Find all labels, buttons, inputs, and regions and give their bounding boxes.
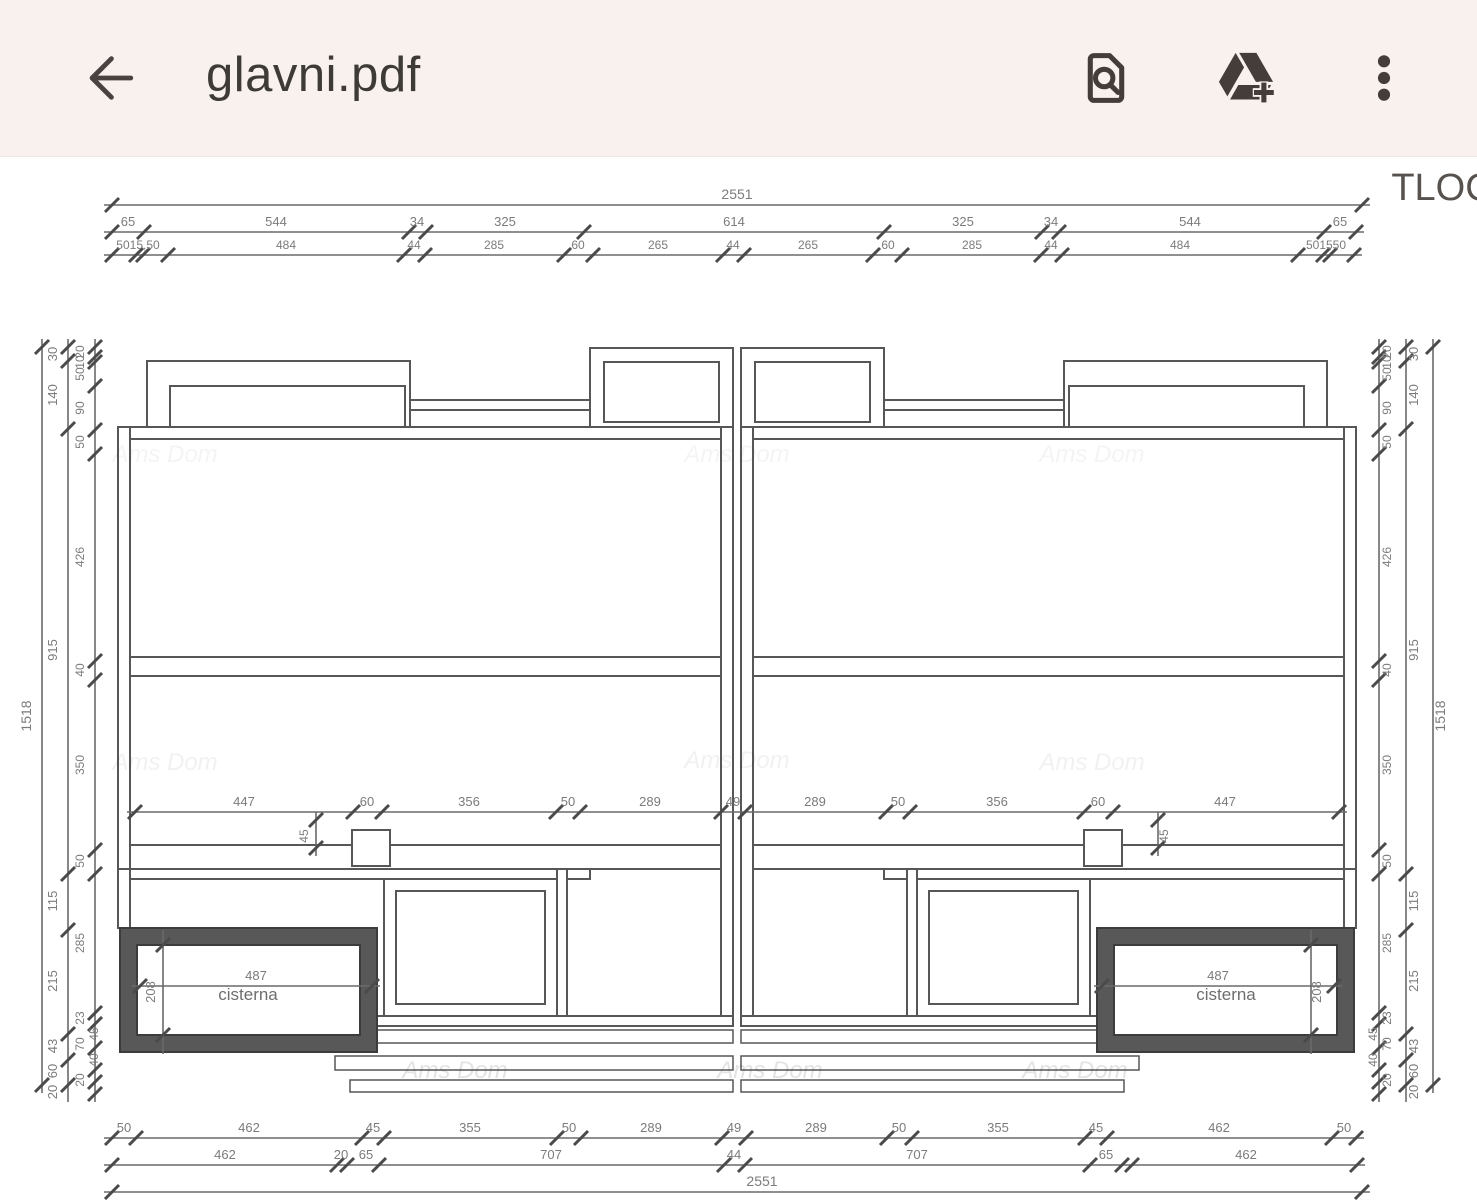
svg-text:215: 215 <box>1406 970 1421 992</box>
svg-text:65: 65 <box>1333 214 1347 229</box>
app-bar-actions <box>1071 43 1417 113</box>
svg-text:20: 20 <box>1380 1073 1394 1087</box>
svg-text:462: 462 <box>238 1120 260 1135</box>
svg-text:50: 50 <box>1337 1120 1351 1135</box>
svg-text:70: 70 <box>1380 1037 1394 1051</box>
svg-text:10: 10 <box>73 355 87 369</box>
svg-text:285: 285 <box>1380 933 1394 953</box>
svg-text:34: 34 <box>410 214 424 229</box>
pdf-page-canvas[interactable]: 2551655443432561432534544655015,50484442… <box>0 157 1477 1200</box>
svg-text:115: 115 <box>45 891 60 912</box>
svg-text:544: 544 <box>265 214 287 229</box>
svg-text:426: 426 <box>73 547 87 567</box>
svg-text:60: 60 <box>1406 1064 1421 1078</box>
svg-text:43: 43 <box>45 1039 60 1053</box>
find-in-document-icon <box>1077 49 1135 107</box>
svg-text:289: 289 <box>805 1120 827 1135</box>
svg-text:Ams Dom: Ams Dom <box>1037 749 1144 776</box>
svg-text:140: 140 <box>1406 384 1421 406</box>
svg-text:44: 44 <box>726 238 740 252</box>
svg-text:289: 289 <box>640 1120 662 1135</box>
svg-text:350: 350 <box>73 755 87 775</box>
svg-text:614: 614 <box>723 214 745 229</box>
svg-text:208: 208 <box>1309 981 1324 1003</box>
svg-text:265: 265 <box>648 238 668 252</box>
svg-text:325: 325 <box>494 214 516 229</box>
pdf-viewer: glavni.pdf <box>0 0 1477 1200</box>
svg-text:20: 20 <box>45 1085 60 1099</box>
svg-text:50: 50 <box>73 367 87 381</box>
svg-text:2551: 2551 <box>721 186 752 202</box>
svg-text:40: 40 <box>73 663 87 677</box>
svg-text:356: 356 <box>986 794 1008 809</box>
svg-text:30: 30 <box>1406 347 1421 361</box>
svg-text:cisterna: cisterna <box>218 985 278 1004</box>
svg-text:45: 45 <box>297 829 311 843</box>
svg-text:462: 462 <box>214 1147 236 1162</box>
svg-text:350: 350 <box>1380 755 1394 775</box>
svg-text:50: 50 <box>562 1120 576 1135</box>
svg-text:Ams Dom: Ams Dom <box>1037 441 1144 468</box>
svg-text:90: 90 <box>1380 401 1394 415</box>
back-arrow-icon <box>80 49 138 107</box>
svg-text:50: 50 <box>1380 367 1394 381</box>
svg-text:60: 60 <box>360 794 374 809</box>
svg-text:Ams Dom: Ams Dom <box>110 441 217 468</box>
svg-text:60: 60 <box>571 238 585 252</box>
more-options-button[interactable] <box>1351 45 1417 111</box>
svg-text:34: 34 <box>1044 214 1058 229</box>
svg-text:Ams Dom: Ams Dom <box>715 1057 822 1084</box>
svg-text:44: 44 <box>727 1147 741 1162</box>
svg-text:65: 65 <box>121 214 135 229</box>
svg-text:65: 65 <box>1099 1147 1113 1162</box>
svg-text:208: 208 <box>143 981 158 1003</box>
svg-text:44: 44 <box>407 238 421 252</box>
svg-text:355: 355 <box>459 1120 481 1135</box>
svg-text:10: 10 <box>1380 355 1394 369</box>
document-title: glavni.pdf <box>206 47 421 103</box>
find-in-document-button[interactable] <box>1071 43 1141 113</box>
svg-text:487: 487 <box>245 968 267 983</box>
svg-text:285: 285 <box>73 933 87 953</box>
svg-text:2551: 2551 <box>746 1173 777 1189</box>
svg-text:40: 40 <box>87 1053 101 1067</box>
svg-text:285: 285 <box>962 238 982 252</box>
svg-text:TLOC: TLOC <box>1391 167 1477 209</box>
svg-text:1518: 1518 <box>1432 700 1448 731</box>
svg-text:501550: 501550 <box>1306 238 1346 252</box>
svg-text:289: 289 <box>804 794 826 809</box>
svg-text:487: 487 <box>1207 968 1229 983</box>
svg-text:60: 60 <box>1091 794 1105 809</box>
svg-text:50: 50 <box>891 794 905 809</box>
svg-text:23: 23 <box>73 1011 87 1025</box>
svg-text:915: 915 <box>45 639 60 661</box>
back-button[interactable] <box>72 41 146 115</box>
svg-text:50: 50 <box>561 794 575 809</box>
overflow-menu-icon <box>1357 51 1411 105</box>
svg-text:70: 70 <box>73 1037 87 1051</box>
svg-text:40: 40 <box>1366 1053 1380 1067</box>
svg-text:45: 45 <box>1089 1120 1103 1135</box>
svg-text:Ams Dom: Ams Dom <box>400 1057 507 1084</box>
svg-text:50: 50 <box>1380 854 1394 868</box>
drive-add-icon <box>1217 49 1275 107</box>
svg-text:5015,50: 5015,50 <box>116 238 160 252</box>
svg-text:447: 447 <box>1214 794 1236 809</box>
svg-text:44: 44 <box>1044 238 1058 252</box>
svg-text:484: 484 <box>276 238 296 252</box>
svg-text:90: 90 <box>73 401 87 415</box>
svg-text:50: 50 <box>73 435 87 449</box>
svg-text:45: 45 <box>1157 829 1171 843</box>
svg-text:50: 50 <box>1380 435 1394 449</box>
svg-text:20: 20 <box>334 1147 348 1162</box>
svg-text:60: 60 <box>45 1064 60 1078</box>
svg-text:43: 43 <box>1406 1039 1421 1053</box>
svg-text:50: 50 <box>117 1120 131 1135</box>
svg-text:20: 20 <box>1406 1085 1421 1099</box>
svg-text:707: 707 <box>540 1147 562 1162</box>
svg-text:462: 462 <box>1235 1147 1257 1162</box>
app-bar: glavni.pdf <box>0 0 1477 157</box>
svg-text:325: 325 <box>952 214 974 229</box>
svg-text:45: 45 <box>1366 1027 1380 1041</box>
svg-text:Ams Dom: Ams Dom <box>682 747 789 774</box>
svg-text:60: 60 <box>881 238 895 252</box>
svg-text:140: 140 <box>45 384 60 406</box>
svg-text:50: 50 <box>73 854 87 868</box>
svg-text:447: 447 <box>233 794 255 809</box>
add-to-drive-button[interactable] <box>1211 43 1281 113</box>
svg-text:544: 544 <box>1179 214 1201 229</box>
svg-text:45: 45 <box>87 1027 101 1041</box>
svg-text:355: 355 <box>987 1120 1009 1135</box>
svg-text:215: 215 <box>45 970 60 992</box>
svg-text:45: 45 <box>366 1120 380 1135</box>
svg-text:426: 426 <box>1380 547 1394 567</box>
svg-text:115: 115 <box>1406 891 1421 912</box>
svg-text:50: 50 <box>892 1120 906 1135</box>
svg-text:265: 265 <box>798 238 818 252</box>
floor-plan-drawing: 2551655443432561432534544655015,50484442… <box>0 157 1477 1200</box>
svg-text:484: 484 <box>1170 238 1190 252</box>
svg-text:356: 356 <box>458 794 480 809</box>
svg-text:40: 40 <box>1380 663 1394 677</box>
svg-text:49: 49 <box>727 1120 741 1135</box>
svg-text:Ams Dom: Ams Dom <box>110 749 217 776</box>
svg-text:65: 65 <box>359 1147 373 1162</box>
svg-text:23: 23 <box>1380 1011 1394 1025</box>
svg-text:Ams Dom: Ams Dom <box>1020 1057 1127 1084</box>
svg-text:20: 20 <box>73 1073 87 1087</box>
svg-text:915: 915 <box>1406 639 1421 661</box>
svg-text:707: 707 <box>906 1147 928 1162</box>
svg-text:1518: 1518 <box>18 700 34 731</box>
svg-text:Ams Dom: Ams Dom <box>682 441 789 468</box>
svg-text:49: 49 <box>726 794 740 809</box>
svg-text:285: 285 <box>484 238 504 252</box>
svg-text:462: 462 <box>1208 1120 1230 1135</box>
svg-text:cisterna: cisterna <box>1196 985 1256 1004</box>
svg-text:289: 289 <box>639 794 661 809</box>
svg-text:30: 30 <box>45 347 60 361</box>
